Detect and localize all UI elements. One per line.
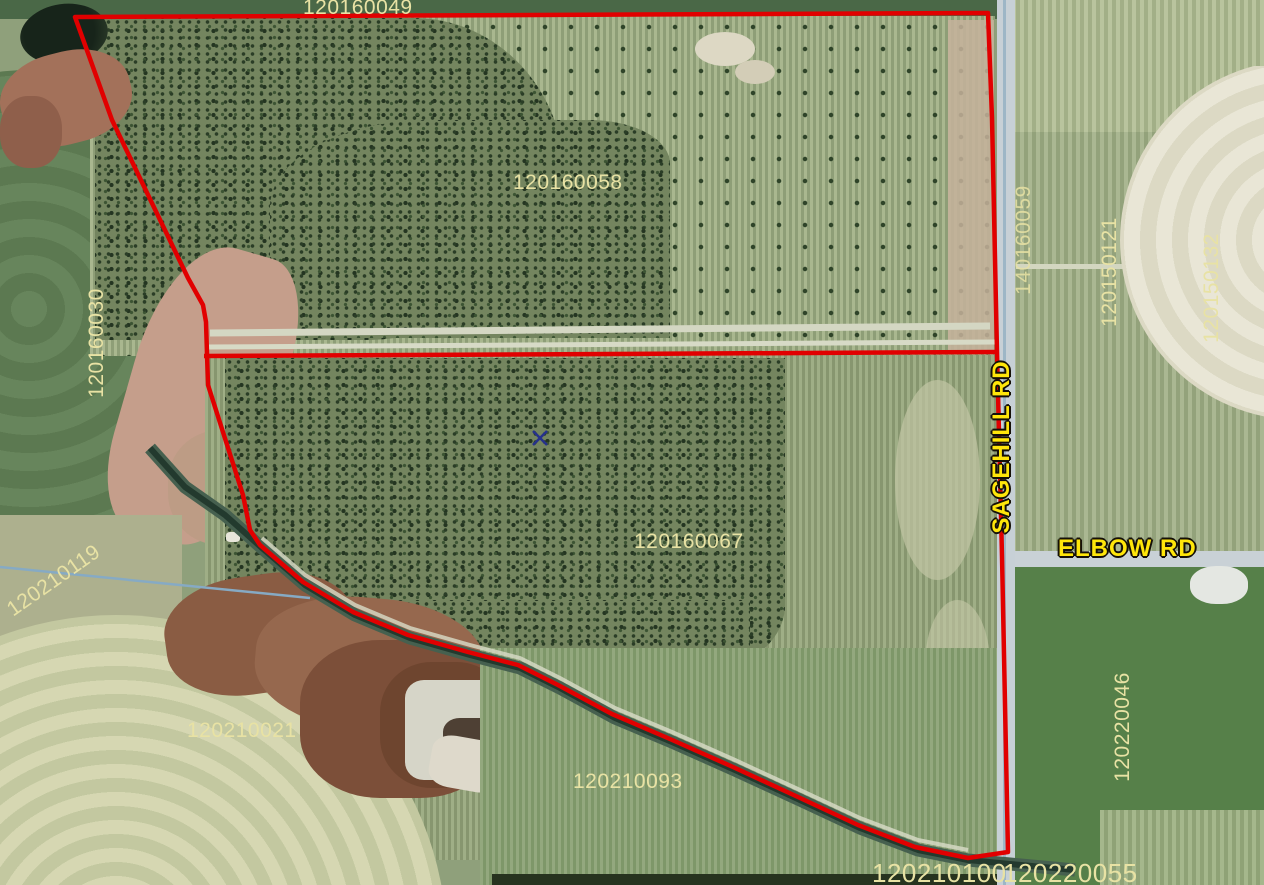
- road-label-elbow-rd: ELBOW RD: [1058, 535, 1197, 563]
- boundary-divider: [204, 352, 999, 356]
- farm-track-mid: [208, 342, 996, 347]
- parcel-label-120160067: 120160067: [634, 530, 744, 554]
- parcel-label-120160049: 120160049: [303, 0, 413, 20]
- road-label-sagehill-rd: SAGEHILL RD: [988, 360, 1016, 533]
- parcel-label-120150121: 120150121: [1098, 217, 1122, 327]
- canal-outer: [150, 448, 1075, 870]
- parcel-label-120220046: 120220046: [1111, 672, 1135, 782]
- parcel-label-120160030: 120160030: [85, 288, 109, 398]
- x-marker: [533, 431, 547, 445]
- parcel-label-120210093: 120210093: [573, 770, 683, 794]
- farm-track-upper: [210, 326, 990, 333]
- map-overlay: [0, 0, 1264, 885]
- parcel-label-120150132: 120150132: [1200, 233, 1224, 343]
- map-canvas[interactable]: 120160049 120160058 120160030 140160059 …: [0, 0, 1264, 885]
- parcel-label-120210021: 120210021: [187, 719, 297, 743]
- parcel-label-120220055: 120220055: [1003, 858, 1138, 885]
- parcel-label-120210100: 120210100: [872, 858, 1007, 885]
- canal-bank-track: [262, 538, 968, 850]
- parcel-label-140160059: 140160059: [1012, 185, 1036, 295]
- canal-water: [150, 448, 1075, 870]
- parcel-label-120160058: 120160058: [513, 171, 623, 195]
